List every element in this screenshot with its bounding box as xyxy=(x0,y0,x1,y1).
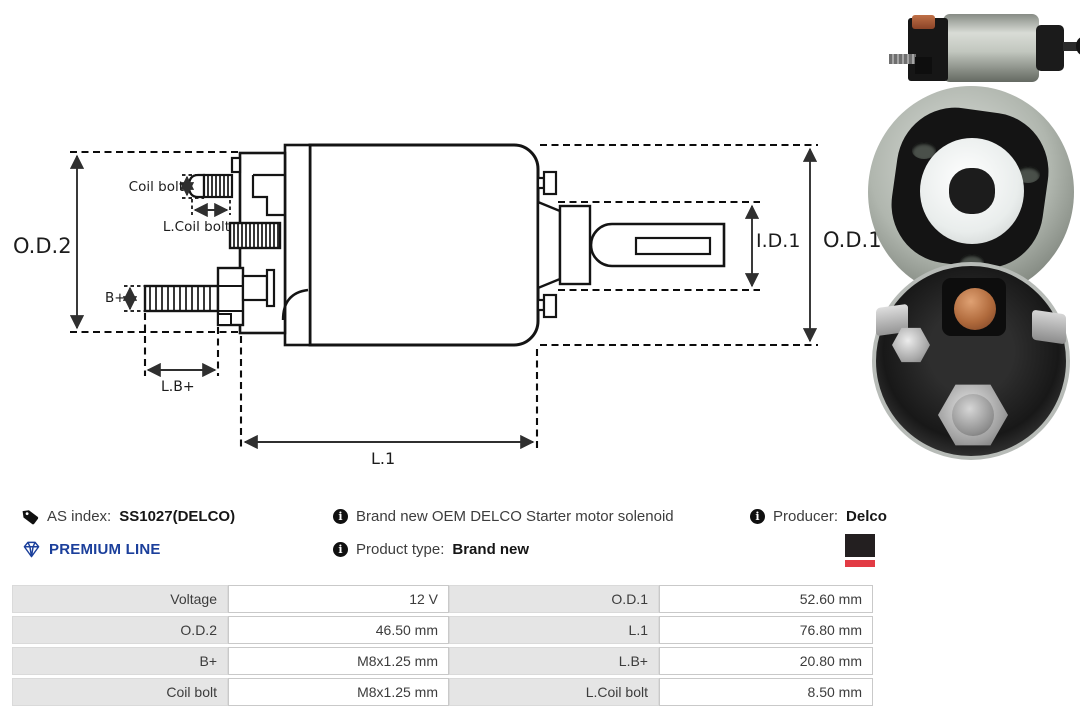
info-icon: i xyxy=(333,509,348,524)
l1-label: L.1 xyxy=(371,449,395,468)
spec-value-cell: 8.50 mm xyxy=(659,678,873,706)
spec-value-cell: M8x1.25 mm xyxy=(228,678,449,706)
photo-threaded-stud xyxy=(889,54,916,64)
spec-label-cell: O.D.2 xyxy=(12,616,228,644)
spec-label-cell: L.B+ xyxy=(449,647,659,675)
photo-copper-contact xyxy=(954,288,996,330)
brand-logo-red-bar xyxy=(845,560,875,567)
table-row: Coil bolt M8x1.25 mm L.Coil bolt 8.50 mm xyxy=(12,678,873,706)
photo-dome-nut xyxy=(952,394,994,436)
spec-label-cell: Voltage xyxy=(12,585,228,613)
premium-line-row[interactable]: PREMIUM LINE xyxy=(22,541,161,558)
spec-value-cell: 52.60 mm xyxy=(659,585,873,613)
description-row: i Brand new OEM DELCO Starter motor sole… xyxy=(333,508,674,525)
spec-value-cell: M8x1.25 mm xyxy=(228,647,449,675)
as-index-label: AS index: xyxy=(47,508,111,525)
product-page: O.D.2 O.D.1 I.D.1 L.1 L.B+ B+ Coil bolt … xyxy=(0,0,1080,718)
producer-row: i Producer: Delco xyxy=(750,508,887,525)
description-text: Brand new OEM DELCO Starter motor soleno… xyxy=(356,508,674,525)
tag-icon xyxy=(22,508,39,525)
table-row: Voltage 12 V O.D.1 52.60 mm xyxy=(12,585,873,613)
spec-value-cell: 12 V xyxy=(228,585,449,613)
product-type-value: Brand new xyxy=(452,541,529,558)
technical-diagram: O.D.2 O.D.1 I.D.1 L.1 L.B+ B+ Coil bolt … xyxy=(0,0,880,492)
photo-nut xyxy=(915,57,932,74)
spec-value-cell: 46.50 mm xyxy=(228,616,449,644)
photo-side-view[interactable] xyxy=(888,8,1080,88)
solenoid-cross-section xyxy=(145,145,724,345)
product-type-label: Product type: xyxy=(356,541,444,558)
producer-value: Delco xyxy=(846,508,887,525)
as-index-row: AS index: SS1027(DELCO) xyxy=(22,508,235,525)
bplus-label: B+ xyxy=(105,290,126,306)
producer-label: Producer: xyxy=(773,508,838,525)
spec-label-cell: B+ xyxy=(12,647,228,675)
photo-cylinder xyxy=(943,14,1039,82)
premium-line-label[interactable]: PREMIUM LINE xyxy=(49,541,161,558)
photo-plunger-tip xyxy=(1076,37,1080,55)
info-icon: i xyxy=(333,542,348,557)
info-icon: i xyxy=(750,509,765,524)
spec-label-cell: L.Coil bolt xyxy=(449,678,659,706)
lbplus-label: L.B+ xyxy=(161,379,195,395)
id1-label: I.D.1 xyxy=(756,230,800,252)
photo-copper-terminal xyxy=(912,15,935,29)
photo-center-hub xyxy=(949,168,995,214)
photo-terminal-view[interactable] xyxy=(872,262,1070,460)
spec-table: Voltage 12 V O.D.1 52.60 mm O.D.2 46.50 … xyxy=(12,585,873,709)
l-coil-bolt-label: L.Coil bolt xyxy=(163,219,230,235)
spec-label-cell: Coil bolt xyxy=(12,678,228,706)
product-type-row: i Product type: Brand new xyxy=(333,541,529,558)
spec-value-cell: 20.80 mm xyxy=(659,647,873,675)
table-row: O.D.2 46.50 mm L.1 76.80 mm xyxy=(12,616,873,644)
photo-bracket-right xyxy=(1032,310,1066,345)
photo-terminal-face xyxy=(872,262,1070,460)
spec-label-cell: L.1 xyxy=(449,616,659,644)
gem-icon xyxy=(22,541,41,558)
od2-label: O.D.2 xyxy=(13,234,72,258)
table-row: B+ M8x1.25 mm L.B+ 20.80 mm xyxy=(12,647,873,675)
as-index-value: SS1027(DELCO) xyxy=(119,508,235,525)
spec-label-cell: O.D.1 xyxy=(449,585,659,613)
photo-end-cap xyxy=(1036,25,1064,71)
brand-logo-black-block xyxy=(845,534,875,557)
brand-logo xyxy=(845,534,875,567)
spec-value-cell: 76.80 mm xyxy=(659,616,873,644)
coil-bolt-label: Coil bolt xyxy=(129,179,184,195)
